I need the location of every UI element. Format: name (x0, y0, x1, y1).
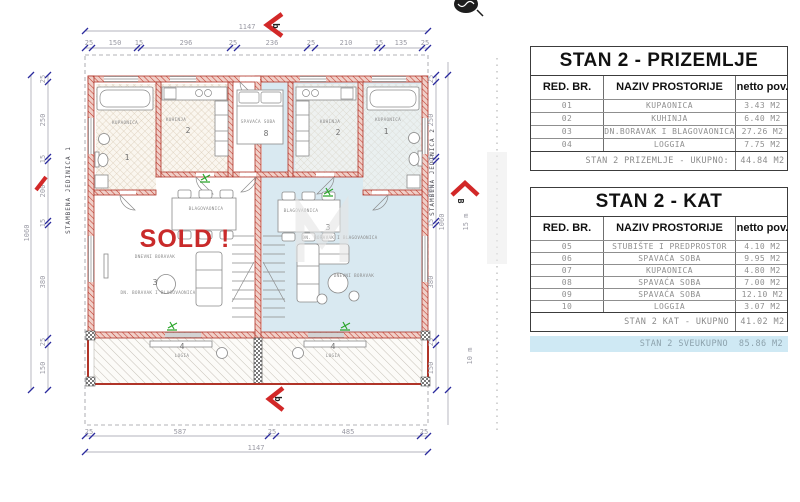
col-header: NAZIV PROSTORIJE (603, 217, 735, 240)
loggia-left-label: LOGIA (175, 353, 190, 359)
dim-label: 25 (268, 428, 276, 436)
col-header: RED. BR. (531, 76, 603, 99)
dim-label: 210 (340, 39, 353, 47)
table-cell: 04 (531, 139, 603, 151)
grand-total-row: STAN 2 SVEUKUPNO 85.86 M2 (530, 336, 788, 352)
table-cell: 09 (531, 289, 603, 300)
table-cell: DN.BORAVAK I BLAGOVAONICA (603, 126, 735, 138)
bath-left-label: KUPAONICA (112, 120, 138, 126)
dim-label: 250 (427, 114, 435, 127)
section-marker-top-letter: b (270, 23, 280, 29)
dim-label: 15 (135, 39, 143, 47)
dim-right-overall: 1060 (438, 214, 446, 231)
section-marker-bottom-letter: b (272, 396, 282, 402)
table-row: 02 KUHINJA 6.40 M2 (531, 112, 787, 125)
table-cell: SPAVAĆA SOBA (603, 253, 735, 264)
dim-label: 15 (427, 219, 435, 227)
kitchen-right-label: KUHINJA (320, 119, 340, 125)
sitting-left-label: DNEVNI BORAVAK (135, 254, 176, 260)
table-cell: 01 (531, 100, 603, 112)
floorplan-drawing: KUPAONICA 1 KUHINJA 2 SPAVAĆA SOBA 8 KUH… (0, 0, 520, 502)
table-row: 06 SPAVAĆA SOBA 9.95 M2 (531, 252, 787, 264)
loggia-left-number: 4 (180, 342, 185, 351)
dim-label: 250 (39, 114, 47, 127)
dim-label: 25 (85, 428, 93, 436)
section-marker-right-letter: B (456, 199, 465, 204)
total-label: STAN 2 PRIZEMLJE - UKUPNO: (531, 152, 735, 170)
dim-label: 25 (427, 75, 435, 83)
table-cell: 9.95 M2 (735, 253, 789, 264)
loggia-right-number: 4 (331, 342, 336, 351)
table-cell: SPAVAĆA SOBA (603, 289, 735, 300)
bath-right-number: 1 (384, 127, 389, 136)
table-cell: 6.40 M2 (735, 113, 789, 125)
table-title: STAN 2 - PRIZEMLJE (531, 47, 787, 76)
table-row: 09 SPAVAĆA SOBA 12.10 M2 (531, 288, 787, 300)
dim-label: 485 (342, 428, 355, 436)
dim-label: 25 (421, 39, 429, 47)
dim-label: 15 (375, 39, 383, 47)
bath-right-label: KUPAONICA (375, 117, 401, 123)
table-row: 03 DN.BORAVAK I BLAGOVAONICA 27.26 M2 (531, 125, 787, 138)
table-cell: 08 (531, 277, 603, 288)
dim-label: 25 (229, 39, 237, 47)
table-total-row: STAN 2 PRIZEMLJE - UKUPNO: 44.84 M2 (531, 151, 787, 170)
dim-label: 150 (39, 362, 47, 375)
dim-label: 25 (427, 338, 435, 346)
unit-left-label: STAMBENA JEDINICA 1 (65, 146, 72, 234)
north-arrow-icon (454, 0, 483, 16)
dim-label: 296 (180, 39, 193, 47)
table-row: 08 SPAVAĆA SOBA 7.00 M2 (531, 276, 787, 288)
table-cell: 27.26 M2 (735, 126, 789, 138)
dim-label: 25 (307, 39, 315, 47)
sold-stamp: SOLD ! (140, 225, 231, 253)
table-cell: 3.07 M2 (735, 301, 789, 312)
dim-label: 135 (395, 39, 408, 47)
loggia-right-label: LOGIA (326, 353, 341, 359)
table-cell: 7.00 M2 (735, 277, 789, 288)
table-stan2-prizemlje: STAN 2 - PRIZEMLJE RED. BR. NAZIV PROSTO… (530, 46, 788, 171)
dim-label: 587 (174, 428, 187, 436)
table-total-row: STAN 2 KAT - UKUPNO 41.02 M2 (531, 312, 787, 331)
dim-label: 15 (427, 155, 435, 163)
dim-label: 25 (39, 338, 47, 346)
section-marker-right-icon (452, 183, 478, 195)
table-cell: 12.10 M2 (735, 289, 789, 300)
table-cell: KUPAONICA (603, 100, 735, 112)
total-value: 41.02 M2 (735, 313, 789, 331)
table-cell: LOGGIA (603, 301, 735, 312)
dim-label: 380 (427, 276, 435, 289)
dim-label: 236 (266, 39, 279, 47)
dim-label: 25 (85, 39, 93, 47)
table-header: RED. BR. NAZIV PROSTORIJE netto pov. (531, 76, 787, 99)
col-header: netto pov. (735, 217, 789, 240)
col-header: NAZIV PROSTORIJE (603, 76, 735, 99)
col-header: RED. BR. (531, 217, 603, 240)
dim-label: 150 (109, 39, 122, 47)
table-stan2-kat: STAN 2 - KAT RED. BR. NAZIV PROSTORIJE n… (530, 187, 788, 332)
living-left-label: DN. BORAVAK I BLAGOVAONICA (120, 290, 195, 296)
center-room-label: SPAVAĆA SOBA (241, 118, 276, 125)
kitchen-left-number: 2 (186, 126, 191, 135)
sitting-right-label: DNEVNI BORAVAK (334, 273, 375, 279)
area-tables: STAN 2 - PRIZEMLJE RED. BR. NAZIV PROSTO… (530, 46, 788, 352)
table-cell: 06 (531, 253, 603, 264)
dim-label: 150 (427, 362, 435, 375)
total-label: STAN 2 KAT - UKUPNO (531, 313, 735, 331)
living-left-number: 3 (153, 278, 158, 287)
bath-left-number: 1 (125, 153, 130, 162)
dim-label: 380 (39, 276, 47, 289)
table-cell: 3.43 M2 (735, 100, 789, 112)
table-cell: LOGGIA (603, 139, 735, 151)
table-cell: 02 (531, 113, 603, 125)
dim-label: 200 (427, 185, 435, 198)
dim-top-overall: 1147 (239, 23, 256, 31)
table-title: STAN 2 - KAT (531, 188, 787, 217)
dim-label: 25 (39, 75, 47, 83)
dim-label: 15 (39, 219, 47, 227)
table-cell: 03 (531, 126, 603, 138)
total-value: 44.84 M2 (735, 152, 789, 170)
dim-label: 15 (39, 155, 47, 163)
table-cell: 4.10 M2 (735, 241, 789, 252)
table-cell: 4.80 M2 (735, 265, 789, 276)
table-cell: STUBIŠTE I PREDPROSTOR (603, 241, 735, 252)
table-cell: 05 (531, 241, 603, 252)
loggia-party-wall (254, 338, 262, 384)
table-row: 04 LOGGIA 7.75 M2 (531, 138, 787, 151)
table-header: RED. BR. NAZIV PROSTORIJE netto pov. (531, 217, 787, 240)
table-cell: KUHINJA (603, 113, 735, 125)
note-lower: 10 m (466, 348, 474, 365)
table-cell: 7.75 M2 (735, 139, 789, 151)
table-cell: 07 (531, 265, 603, 276)
center-room-number: 8 (264, 129, 269, 138)
col-header: netto pov. (735, 76, 789, 99)
dim-label: 25 (420, 428, 428, 436)
bedroom-center-fixtures (237, 90, 283, 144)
table-row: 05 STUBIŠTE I PREDPROSTOR 4.10 M2 (531, 240, 787, 252)
kitchen-left-label: KUHINJA (166, 117, 186, 123)
table-row: 10 LOGGIA 3.07 M2 (531, 300, 787, 312)
floorplan-page: KUPAONICA 1 KUHINJA 2 SPAVAĆA SOBA 8 KUH… (0, 0, 800, 502)
table-cell: SPAVAĆA SOBA (603, 277, 735, 288)
dining-left-label: BLAGOVAONICA (189, 206, 224, 212)
table-cell: 10 (531, 301, 603, 312)
table-row: 07 KUPAONICA 4.80 M2 (531, 264, 787, 276)
kitchen-right-number: 2 (336, 128, 341, 137)
dim-bottom-overall: 1147 (248, 444, 265, 452)
table-cell: KUPAONICA (603, 265, 735, 276)
grand-total-label: STAN 2 SVEUKUPNO (530, 336, 734, 352)
grand-total-value: 85.86 M2 (734, 336, 788, 352)
table-row: 01 KUPAONICA 3.43 M2 (531, 99, 787, 112)
note-upper: 15 m (462, 214, 470, 231)
unit-right-label: STAMBENA JEDINICA 2 (429, 128, 436, 216)
dim-left-overall: 1060 (23, 225, 31, 242)
